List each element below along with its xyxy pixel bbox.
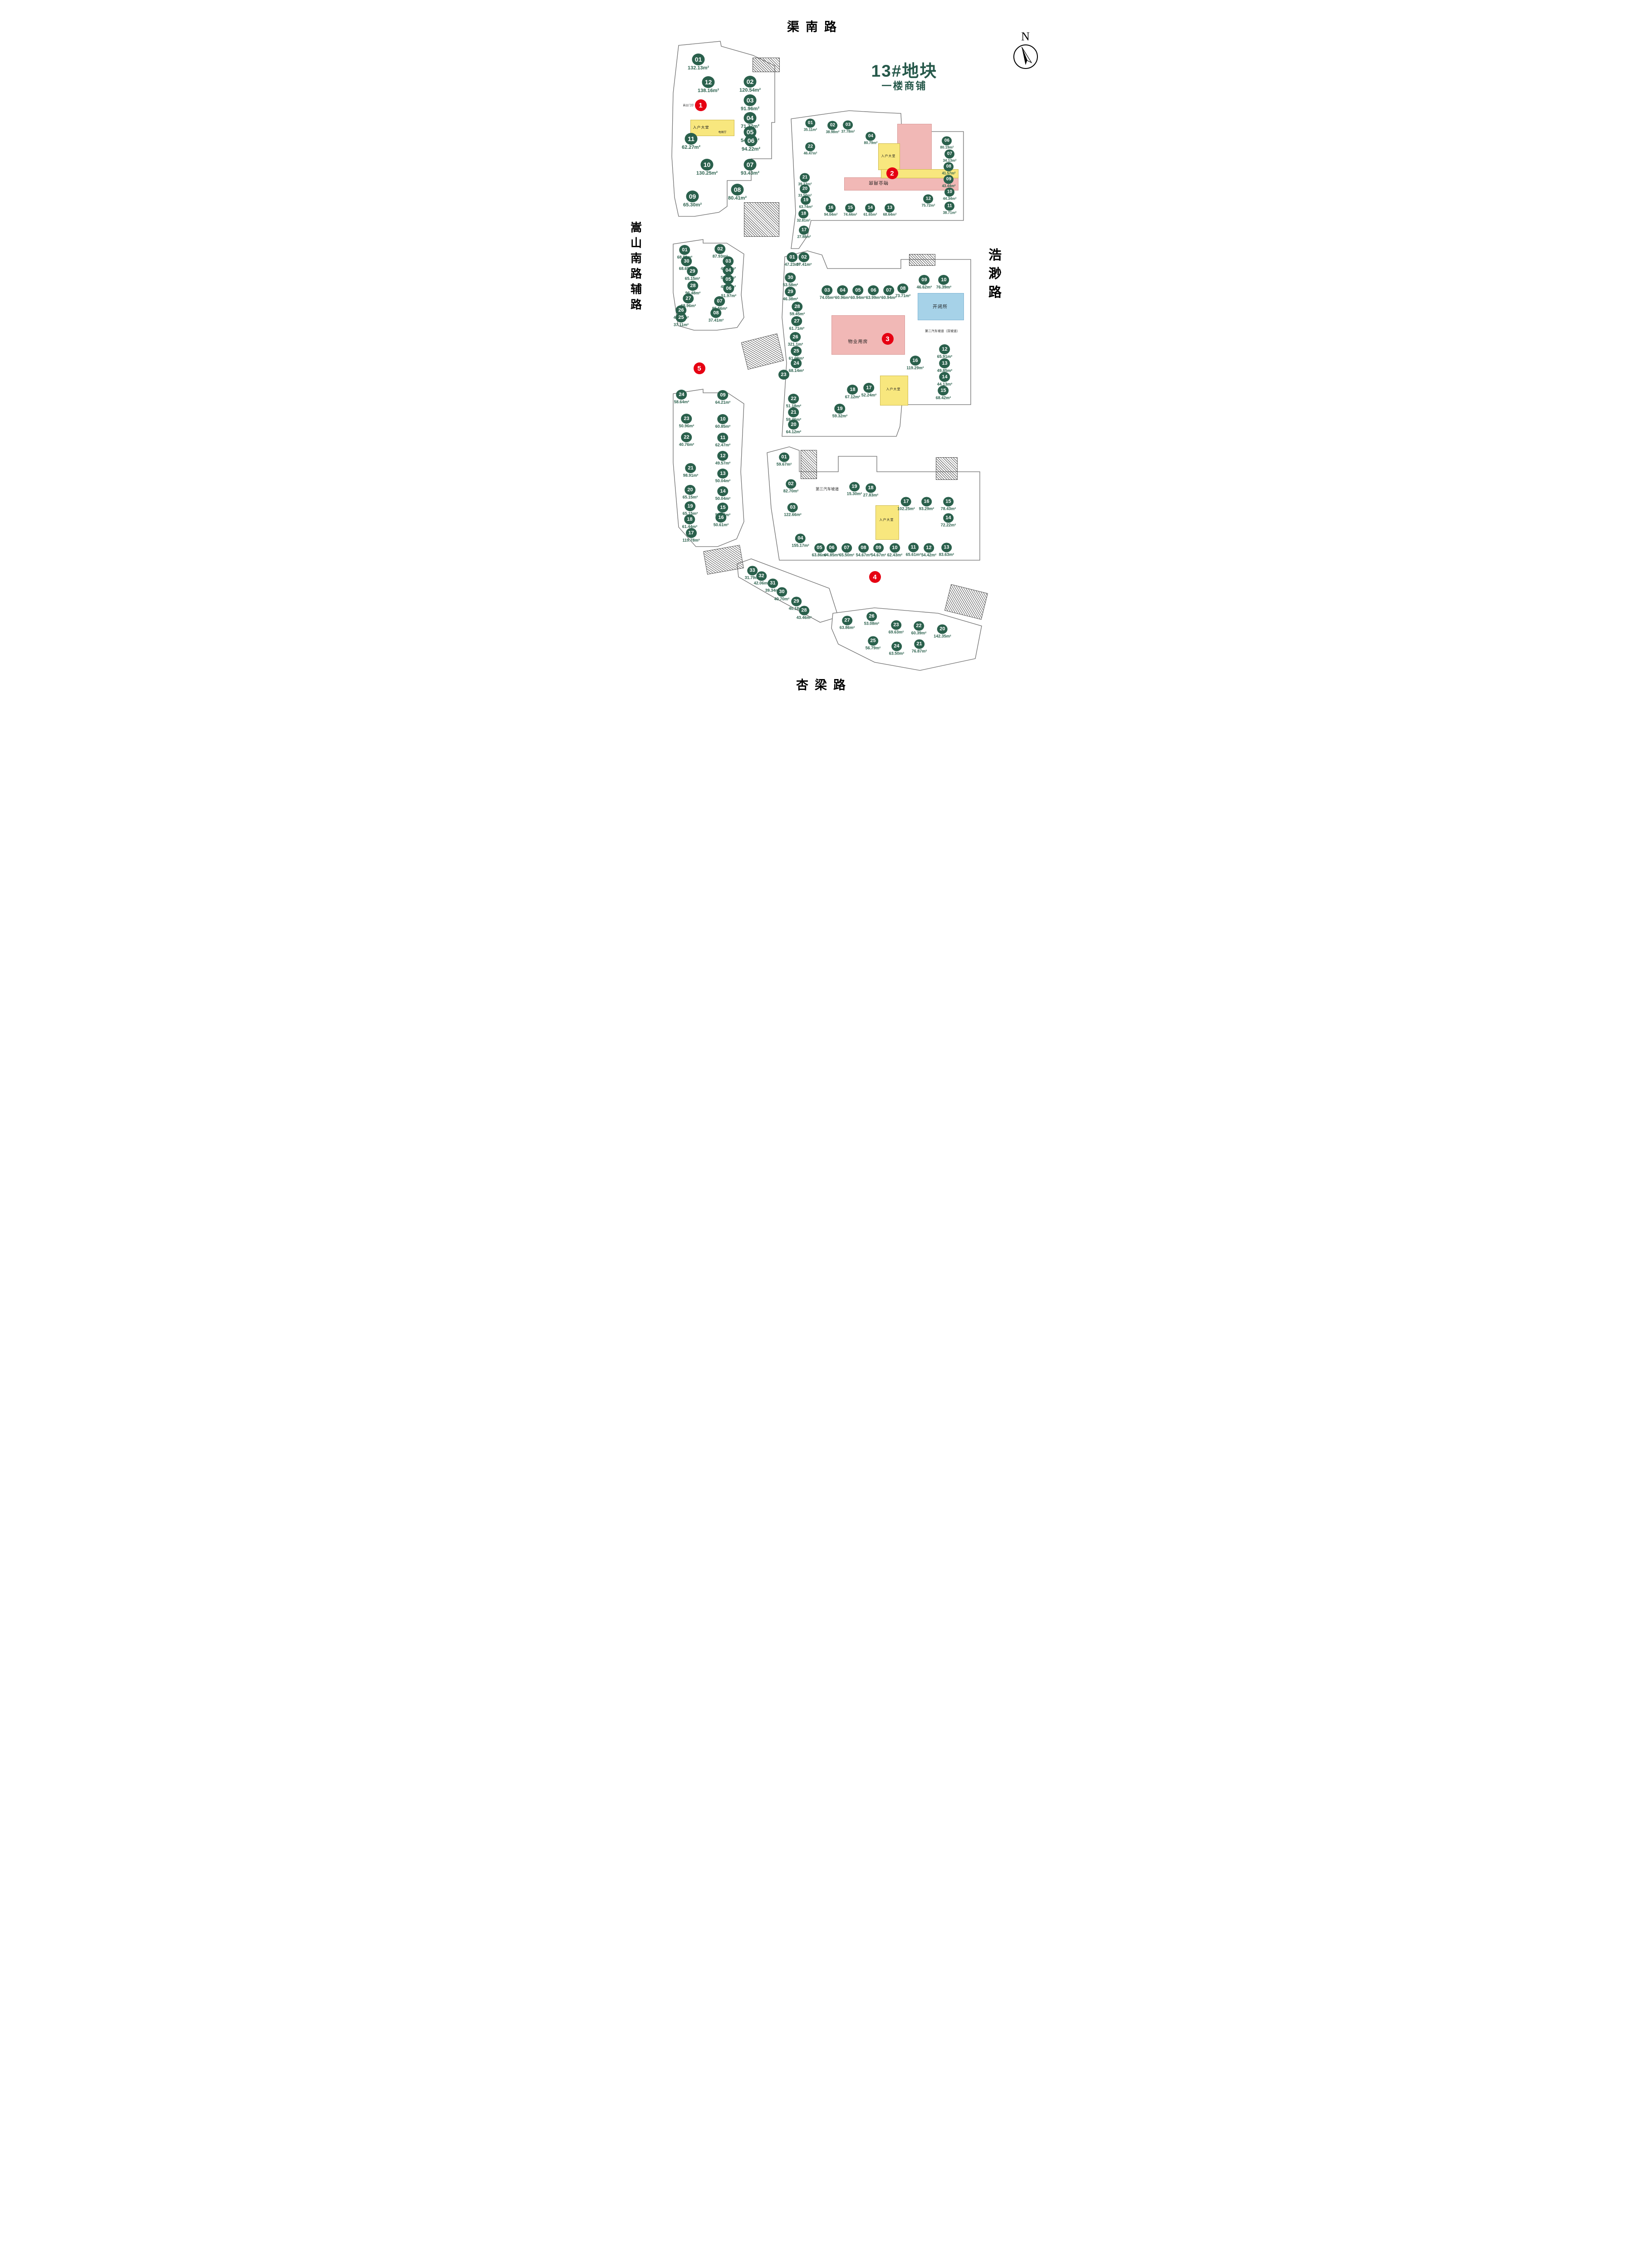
unit-number: 09 [919, 275, 930, 285]
unit-number: 07 [841, 543, 852, 553]
unit-badge-4-30: 3040.70m² [774, 587, 790, 601]
unit-number: 15 [718, 503, 729, 513]
unit-badge-1-10: 10130.25m² [696, 159, 718, 176]
unit-number: 04 [866, 132, 875, 141]
unit-area: 80.79m² [864, 142, 878, 145]
unit-number: 12 [923, 195, 933, 204]
unit-badge-4-19: 1915.30m² [847, 482, 862, 496]
unit-area: 35.11m² [804, 128, 817, 132]
unit-badge-4-06: 0664.85m² [824, 543, 840, 557]
unit-badge-5-10: 1060.85m² [715, 414, 731, 429]
unit-number: 20 [800, 185, 810, 194]
unit-number: 10 [939, 275, 949, 285]
unit-area: 59.32m² [832, 414, 848, 418]
unit-badge-4-08: 0854.67m² [856, 543, 871, 557]
unit-badge-3-04: 0460.96m² [835, 285, 851, 300]
unit-badge-4-03: 03122.66m² [784, 503, 802, 517]
street-name-north: 渠南路 [787, 17, 843, 35]
unit-number: 31 [768, 579, 778, 588]
unit-area: 52.24m² [861, 393, 877, 397]
unit-badge-2-16: 1694.04m² [824, 204, 838, 217]
unit-badge-5-19: 1965.15m² [683, 501, 698, 516]
unit-area: 75.72m² [922, 204, 935, 208]
unit-badge-5-25: 2537.11m² [674, 313, 689, 327]
unit-number: 10 [701, 159, 714, 171]
unit-area: 54.67m² [871, 553, 886, 557]
unit-number: 25 [868, 636, 878, 646]
unit-badge-2-04: 0480.79m² [864, 132, 878, 145]
unit-area: 63.86m² [840, 626, 855, 630]
unit-area: 63.50m² [889, 652, 905, 656]
unit-number: 18 [866, 484, 876, 493]
unit-area: 27.88m² [797, 235, 811, 239]
unit-number: 15 [943, 497, 954, 507]
unit-area: 40.76m² [679, 443, 694, 447]
unit-area: 60.94m² [881, 296, 897, 300]
unit-badge-3-23: 23 [778, 370, 789, 380]
unit-number: 04 [723, 265, 734, 275]
unit-number: 19 [835, 404, 846, 414]
unit-area: 37.41m² [709, 318, 724, 323]
building-outlines-layer [584, 0, 1059, 707]
unit-badge-1-08: 0880.41m² [728, 184, 747, 201]
compass-n-label: N [1012, 31, 1040, 43]
unit-badge-3-29: 2946.38m² [783, 287, 798, 301]
unit-badge-3-07: 0760.94m² [881, 285, 897, 300]
unit-number: 17 [864, 383, 875, 393]
unit-number: 20 [937, 625, 948, 634]
unit-number: 29 [687, 266, 698, 276]
unit-area: 62.47m² [715, 443, 731, 447]
unit-number: 28 [799, 606, 809, 616]
unit-number: 30 [777, 587, 787, 597]
unit-area: 37.11m² [674, 323, 689, 327]
floor-plan-stage: 13#地块 一楼商铺 渠南路 嵩山南路辅路 浩渺路 杏梁路 N 入户大堂商业门厅… [584, 0, 1059, 707]
unit-area: 46.62m² [917, 285, 932, 289]
unit-number: 02 [799, 252, 810, 262]
unit-number: 18 [685, 514, 695, 524]
unit-badge-1-11: 1162.27m² [682, 133, 700, 150]
unit-area: 72.22m² [941, 523, 956, 528]
unit-area: 132.13m² [688, 66, 709, 71]
unit-badge-1-09: 0965.30m² [683, 191, 702, 208]
unit-number: 03 [822, 285, 833, 295]
stair-hatch-block [753, 58, 780, 72]
unit-number: 12 [718, 451, 729, 461]
unit-number: 01 [805, 119, 815, 128]
unit-number: 11 [718, 433, 729, 443]
zone-label: 入户大堂 [886, 387, 901, 391]
unit-number: 17 [901, 497, 911, 507]
unit-area: 54.42m² [921, 553, 937, 557]
unit-badge-3-09: 0946.62m² [917, 275, 932, 289]
unit-badge-4-24: 2463.50m² [889, 642, 905, 656]
unit-number: 03 [787, 503, 798, 513]
unit-number: 21 [685, 463, 696, 473]
unit-number: 02 [715, 244, 726, 254]
unit-number: 23 [681, 414, 692, 424]
unit-badge-5-29: 2965.15m² [685, 266, 700, 281]
unit-area: 50.04m² [715, 497, 731, 501]
page-title: 13#地块 一楼商铺 [871, 63, 938, 92]
unit-badge-2-11: 1138.71m² [943, 202, 957, 215]
unit-badge-3-15: 1568.42m² [936, 386, 951, 400]
unit-number: 13 [718, 469, 729, 479]
unit-badge-2-22: 2246.47m² [804, 142, 817, 156]
unit-area: 60.96m² [835, 296, 851, 300]
unit-number: 01 [692, 54, 705, 65]
unit-area: 82.70m² [783, 489, 799, 494]
unit-badge-3-19: 1959.32m² [832, 404, 848, 418]
unit-area: 142.35m² [934, 635, 951, 639]
unit-badge-2-14: 1461.65m² [864, 204, 877, 217]
zone-入户大堂 [875, 505, 899, 540]
unit-number: 07 [884, 285, 895, 295]
red-marker-4: 4 [869, 571, 881, 583]
unit-badge-3-30: 3053.58m² [783, 273, 798, 287]
unit-badge-5-22: 2240.76m² [679, 432, 694, 447]
unit-number: 05 [853, 285, 864, 295]
unit-area: 63.99m² [866, 296, 881, 300]
unit-area: 68.64m² [883, 213, 897, 217]
unit-number: 26 [790, 332, 801, 342]
unit-number: 04 [795, 534, 806, 543]
unit-area: 65.15m² [683, 495, 698, 499]
unit-badge-4-16: 1693.29m² [919, 497, 934, 511]
unit-badge-4-27: 2763.86m² [840, 616, 855, 630]
unit-area: 50.61m² [714, 523, 729, 527]
unit-badge-4-15: 1578.43m² [941, 497, 956, 511]
unit-area: 122.66m² [784, 513, 802, 517]
unit-badge-4-04: 04155.17m² [792, 534, 809, 548]
unit-badge-4-11: 1165.61m² [906, 543, 921, 557]
stair-hatch-block [936, 457, 958, 480]
stair-hatch-block [801, 450, 817, 479]
unit-badge-3-05: 0560.94m² [851, 285, 866, 300]
unit-badge-1-03: 0391.96m² [741, 94, 759, 112]
unit-badge-5-21: 2198.91m² [683, 463, 699, 478]
unit-badge-3-12: 1265.91m² [937, 344, 953, 359]
unit-number: 13 [939, 358, 950, 368]
unit-number: 08 [858, 543, 869, 553]
unit-area: 93.29m² [919, 507, 934, 511]
unit-number: 12 [702, 76, 715, 88]
unit-badge-3-13: 1349.85m² [937, 358, 953, 373]
unit-area: 40.70m² [774, 597, 790, 601]
unit-badge-4-23: 2369.63m² [889, 621, 904, 635]
unit-area: 63.74m² [799, 205, 813, 209]
unit-number: 25 [791, 346, 802, 356]
unit-area: 15.30m² [847, 492, 862, 496]
unit-number: 09 [718, 390, 729, 400]
unit-badge-2-03: 0337.78m² [841, 121, 855, 134]
unit-badge-4-26: 2653.08m² [864, 612, 880, 626]
unit-number: 16 [910, 356, 921, 366]
unit-badge-3-16: 16119.29m² [906, 356, 924, 370]
unit-area: 59.45m² [790, 312, 805, 316]
unit-number: 11 [944, 202, 954, 211]
unit-number: 03 [723, 256, 734, 266]
unit-area: 98.91m² [683, 474, 699, 478]
zone-物业用房 [831, 315, 905, 355]
unit-number: 14 [943, 513, 954, 523]
unit-number: 08 [898, 283, 909, 293]
unit-number: 27 [842, 616, 852, 626]
plan-annotation: 第三汽车坡道 [816, 486, 839, 492]
unit-number: 14 [939, 372, 950, 382]
unit-badge-2-08: 0841.57m² [942, 162, 956, 176]
unit-area: 93.43m² [741, 171, 759, 176]
unit-area: 61.65m² [864, 213, 877, 217]
unit-area: 68.14m² [789, 369, 804, 373]
unit-area: 62.43m² [887, 553, 903, 557]
unit-badge-4-20: 20142.35m² [934, 625, 951, 639]
unit-number: 08 [944, 162, 954, 171]
unit-number: 19 [801, 196, 811, 205]
unit-area: 60.94m² [851, 296, 866, 300]
unit-badge-3-20: 2064.12m² [786, 420, 802, 434]
unit-badge-4-17: 17102.25m² [897, 497, 915, 511]
unit-number: 20 [685, 485, 696, 495]
unit-badge-4-22: 2260.39m² [911, 621, 927, 635]
unit-area: 50.04m² [715, 479, 731, 483]
unit-area: 65.61m² [906, 553, 921, 557]
unit-badge-3-28: 2859.45m² [790, 302, 805, 316]
unit-number: 23 [891, 621, 901, 630]
unit-number: 16 [826, 204, 836, 213]
unit-number: 07 [714, 296, 725, 306]
unit-area: 138.16m² [698, 88, 719, 93]
plan-annotation: 第二汽车坡道（双坡道） [925, 329, 960, 333]
unit-badge-3-22: 2251.18m² [786, 394, 802, 408]
unit-area: 80.19m² [940, 146, 954, 150]
unit-area: 32.81m² [797, 219, 811, 223]
unit-number: 13 [941, 543, 952, 552]
unit-number: 14 [718, 486, 729, 496]
unit-number: 02 [827, 121, 837, 130]
unit-number: 23 [778, 370, 789, 380]
unit-number: 01 [680, 245, 690, 255]
unit-badge-5-08: 0837.41m² [709, 308, 724, 323]
unit-area: 120.54m² [739, 88, 761, 93]
zone-label: 入户大堂 [693, 125, 709, 130]
unit-number: 04 [837, 285, 848, 295]
unit-area: 64.21m² [715, 401, 731, 405]
unit-number: 21 [914, 640, 924, 649]
red-marker-1: 1 [695, 99, 707, 111]
north-compass: N [1012, 31, 1040, 73]
unit-number: 03 [743, 94, 756, 106]
unit-badge-2-19: 1963.74m² [799, 196, 813, 209]
unit-badge-4-01: 0159.67m² [777, 453, 792, 467]
unit-number: 24 [676, 390, 687, 400]
unit-badge-5-14: 1450.04m² [715, 486, 731, 501]
unit-area: 67.12m² [845, 395, 861, 399]
unit-badge-3-03: 0374.05m² [820, 285, 835, 300]
unit-badge-4-14: 1472.22m² [941, 513, 956, 528]
unit-area: 68.42m² [936, 396, 951, 400]
unit-badge-5-11: 1162.47m² [715, 433, 731, 447]
unit-number: 02 [786, 479, 796, 489]
unit-badge-1-01: 01132.13m² [688, 54, 709, 71]
zone-label: 物业用房 [848, 338, 868, 345]
unit-badge-5-20: 2065.15m² [683, 485, 698, 499]
unit-number: 05 [814, 543, 825, 553]
unit-area: 78.43m² [941, 507, 956, 511]
unit-area: 53.08m² [864, 622, 880, 626]
unit-number: 16 [716, 513, 727, 523]
unit-number: 09 [944, 175, 954, 184]
zone-label: 入户大堂 [880, 518, 894, 522]
unit-number: 30 [681, 256, 692, 266]
unit-number: 28 [792, 302, 803, 312]
unit-badge-3-10: 1076.39m² [936, 275, 952, 289]
plot-subtitle: 一楼商铺 [871, 80, 938, 92]
unit-area: 91.96m² [741, 107, 759, 112]
unit-badge-2-06: 0680.19m² [940, 137, 954, 150]
unit-number: 14 [865, 204, 875, 213]
unit-number: 15 [845, 204, 855, 213]
unit-area: 65.50m² [839, 553, 855, 557]
unit-number: 30 [785, 273, 796, 283]
unit-area: 27.83m² [863, 494, 879, 498]
unit-badge-1-07: 0793.43m² [741, 159, 759, 176]
unit-number: 06 [826, 543, 837, 553]
unit-area: 65.15m² [685, 277, 700, 281]
compass-icon [1012, 43, 1040, 71]
street-name-south: 杏梁路 [796, 675, 852, 693]
unit-area: 62.27m² [682, 145, 700, 150]
unit-area: 43.46m² [797, 616, 812, 620]
unit-badge-2-10: 1044.34m² [943, 188, 957, 201]
unit-area: 46.47m² [804, 152, 817, 156]
unit-badge-2-15: 1574.44m² [844, 204, 857, 217]
street-name-east: 浩渺路 [984, 248, 1003, 304]
unit-area: 76.39m² [936, 285, 952, 289]
unit-number: 02 [744, 76, 757, 88]
unit-badge-2-12: 1275.72m² [922, 195, 935, 208]
unit-badge-4-13: 1383.63m² [939, 543, 954, 557]
unit-badge-4-02: 0282.70m² [783, 479, 799, 494]
unit-area: 94.04m² [824, 213, 838, 217]
unit-area: 34.13m² [943, 159, 957, 163]
stair-hatch-block [909, 254, 935, 266]
unit-number: 21 [800, 173, 810, 182]
unit-badge-4-21: 2176.87m² [912, 640, 927, 654]
unit-number: 09 [686, 191, 699, 202]
unit-badge-4-07: 0765.50m² [839, 543, 855, 557]
unit-area: 49.57m² [715, 461, 731, 465]
unit-area: 41.57m² [942, 172, 956, 176]
unit-number: 07 [743, 159, 756, 171]
unit-area: 46.38m² [783, 297, 798, 301]
unit-badge-5-09: 0964.21m² [715, 390, 731, 405]
unit-number: 18 [798, 210, 808, 219]
unit-badge-5-17: 17119.78m² [682, 528, 699, 543]
street-name-west: 嵩山南路辅路 [627, 221, 644, 314]
unit-badge-3-26: 26321.1m² [788, 332, 803, 347]
unit-badge-5-23: 2350.96m² [679, 414, 694, 428]
zone-pink [897, 124, 932, 170]
unit-area: 130.25m² [696, 171, 718, 176]
unit-badge-2-02: 0238.98m² [826, 121, 840, 134]
unit-area: 61.71m² [789, 327, 805, 331]
unit-number: 27 [683, 293, 694, 303]
unit-badge-3-17: 1752.24m² [861, 383, 877, 397]
unit-number: 24 [791, 358, 802, 368]
unit-number: 06 [724, 283, 734, 293]
unit-badge-2-18: 1832.81m² [797, 210, 811, 223]
unit-badge-3-18: 1867.12m² [845, 385, 861, 399]
unit-badge-2-13: 1368.64m² [883, 204, 897, 217]
unit-number: 10 [890, 543, 900, 553]
unit-number: 22 [914, 621, 924, 631]
unit-badge-3-06: 0663.99m² [866, 285, 881, 300]
zone-label: 物业用房 [868, 180, 888, 187]
unit-badge-1-02: 02120.54m² [739, 76, 761, 93]
unit-area: 37.41m² [797, 263, 812, 267]
unit-area: 76.87m² [912, 650, 927, 654]
unit-number: 08 [711, 308, 722, 318]
unit-number: 19 [685, 501, 696, 511]
unit-number: 16 [921, 497, 932, 507]
unit-number: 25 [676, 313, 687, 323]
unit-number: 09 [873, 543, 884, 553]
unit-area: 65.30m² [683, 203, 702, 208]
zone-label: 开闭所 [933, 303, 948, 310]
unit-number: 12 [924, 543, 934, 553]
unit-number: 11 [908, 543, 919, 552]
unit-number: 29 [791, 597, 802, 606]
unit-badge-4-09: 0954.67m² [871, 543, 886, 557]
zone-物业用房 [844, 177, 958, 191]
unit-number: 06 [868, 285, 879, 295]
unit-badge-2-01: 0135.11m² [804, 119, 817, 132]
unit-area: 83.63m² [939, 553, 954, 557]
unit-number: 28 [688, 281, 699, 291]
unit-number: 06 [942, 137, 952, 146]
unit-badge-1-06: 0694.22m² [742, 135, 760, 152]
unit-number: 29 [785, 287, 796, 297]
unit-badge-2-07: 0734.13m² [943, 150, 957, 163]
unit-number: 26 [866, 612, 877, 621]
red-marker-5: 5 [694, 362, 705, 374]
unit-number: 17 [799, 226, 809, 235]
unit-number: 13 [885, 204, 895, 213]
unit-badge-2-09: 0943.44m² [942, 175, 956, 188]
plan-annotation: 电梯厅 [718, 130, 726, 134]
unit-area: 119.78m² [682, 538, 699, 543]
unit-number: 04 [743, 112, 756, 124]
unit-badge-3-27: 2761.71m² [789, 316, 805, 331]
unit-number: 07 [944, 150, 954, 159]
unit-number: 10 [718, 414, 729, 424]
unit-area: 74.44m² [844, 213, 857, 217]
unit-area: 43.44m² [942, 185, 956, 188]
unit-number: 24 [891, 642, 902, 651]
unit-area: 58.64m² [674, 400, 689, 404]
zone-label: 入户大堂 [881, 154, 896, 158]
unit-number: 01 [779, 453, 789, 462]
unit-badge-3-14: 1444.13m² [937, 372, 953, 386]
unit-number: 22 [681, 432, 692, 442]
unit-badge-5-12: 1249.57m² [715, 451, 731, 465]
unit-area: 37.78m² [841, 130, 855, 134]
unit-number: 17 [686, 528, 697, 538]
unit-badge-2-17: 1727.88m² [797, 226, 811, 239]
unit-badge-3-08: 0873.71m² [895, 283, 911, 298]
plan-annotation: 商业门厅 [683, 103, 694, 108]
